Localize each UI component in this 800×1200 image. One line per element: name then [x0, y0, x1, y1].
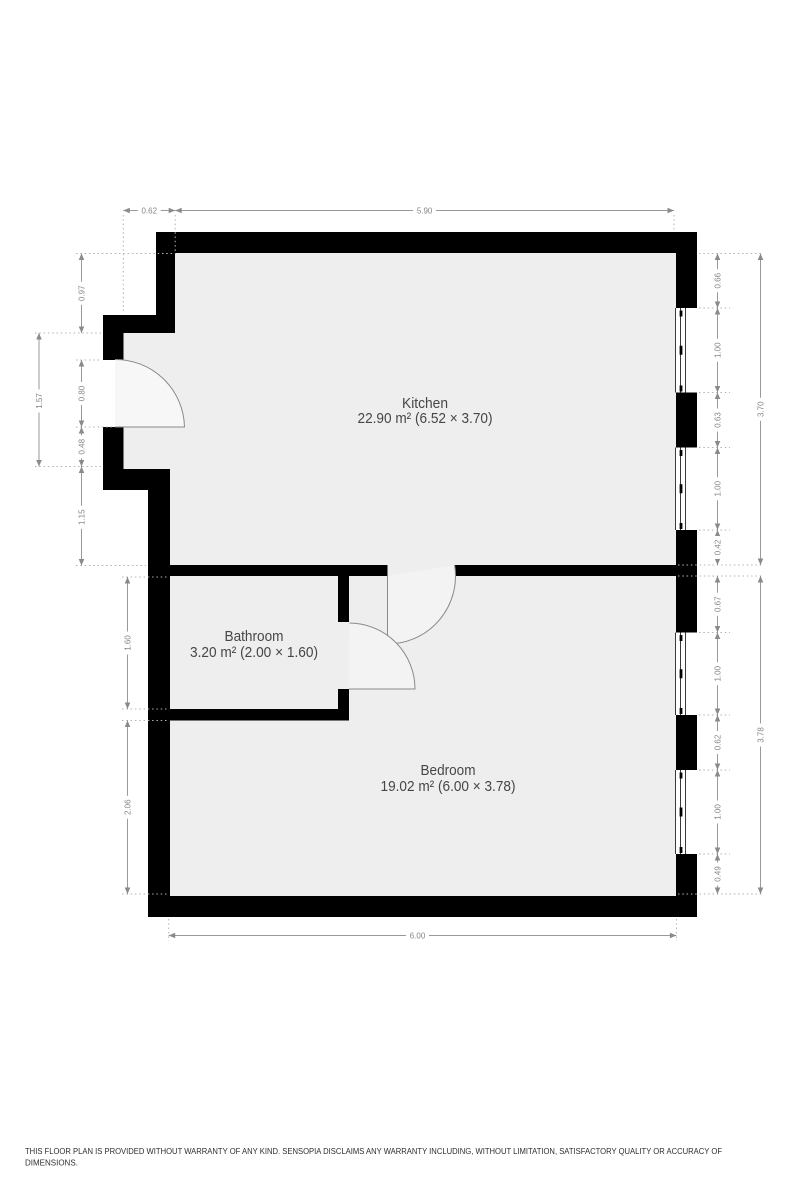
svg-text:2.06: 2.06 — [124, 799, 133, 815]
svg-text:THIS FLOOR PLAN IS PROVIDED WI: THIS FLOOR PLAN IS PROVIDED WITHOUT WARR… — [25, 1147, 722, 1156]
svg-text:0.62: 0.62 — [714, 734, 723, 750]
svg-text:0.67: 0.67 — [714, 596, 723, 612]
svg-text:19.02 m² (6.00 × 3.78): 19.02 m² (6.00 × 3.78) — [381, 778, 516, 795]
svg-text:0.49: 0.49 — [714, 866, 723, 882]
svg-text:0.80: 0.80 — [78, 385, 87, 401]
svg-text:DIMENSIONS.: DIMENSIONS. — [25, 1159, 78, 1168]
svg-text:1.15: 1.15 — [78, 509, 87, 525]
svg-text:1.60: 1.60 — [124, 635, 133, 651]
svg-text:0.63: 0.63 — [714, 412, 723, 428]
svg-text:22.90 m² (6.52 × 3.70): 22.90 m² (6.52 × 3.70) — [358, 410, 493, 427]
svg-text:0.48: 0.48 — [78, 438, 87, 454]
svg-text:0.62: 0.62 — [142, 207, 158, 216]
svg-text:1.00: 1.00 — [714, 804, 723, 820]
svg-text:Bathroom: Bathroom — [225, 628, 284, 645]
svg-text:1.00: 1.00 — [714, 665, 723, 681]
svg-text:0.66: 0.66 — [714, 272, 723, 288]
svg-text:3.78: 3.78 — [757, 727, 766, 743]
svg-text:Bedroom: Bedroom — [421, 762, 476, 779]
svg-text:0.42: 0.42 — [714, 539, 723, 555]
svg-text:6.00: 6.00 — [410, 932, 426, 941]
svg-text:1.57: 1.57 — [35, 393, 44, 409]
svg-text:3.70: 3.70 — [757, 401, 766, 417]
svg-text:3.20 m² (2.00 × 1.60): 3.20 m² (2.00 × 1.60) — [190, 644, 318, 661]
svg-text:1.00: 1.00 — [714, 342, 723, 358]
svg-text:1.00: 1.00 — [714, 480, 723, 496]
svg-text:0.97: 0.97 — [78, 285, 87, 301]
svg-text:5.90: 5.90 — [417, 207, 433, 216]
